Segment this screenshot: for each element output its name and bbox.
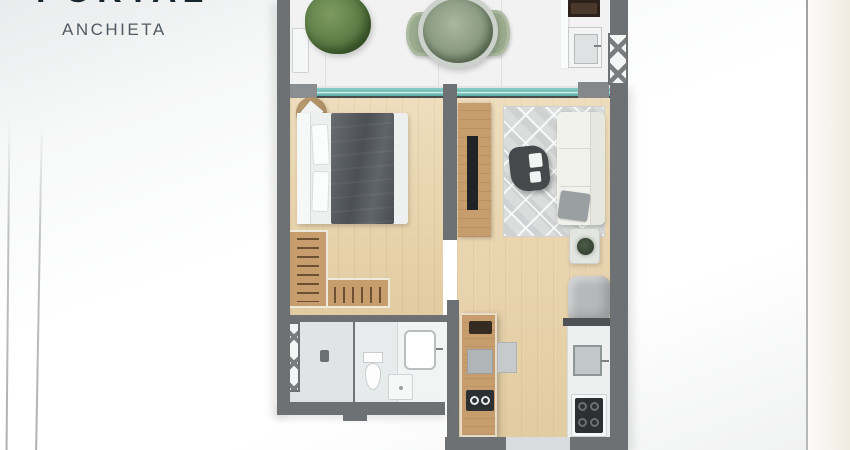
right-edge-line bbox=[806, 0, 808, 450]
wall-center-upper bbox=[443, 84, 457, 240]
stove-surround bbox=[571, 394, 607, 437]
column-hatch-bathroom bbox=[288, 322, 300, 392]
wardrobe-hangers bbox=[297, 238, 319, 302]
wall-bathroom-bottom bbox=[277, 402, 445, 415]
wall-right-top bbox=[610, 0, 628, 33]
bed-pillow bbox=[311, 124, 330, 166]
stove-burner bbox=[590, 402, 599, 411]
counter-dark-edge bbox=[563, 318, 610, 326]
gourmet-divider-wall bbox=[561, 0, 568, 68]
brand-subtitle: ANCHIETA bbox=[62, 21, 167, 38]
microwave bbox=[469, 321, 492, 334]
sofa-throw-blanket bbox=[557, 190, 591, 222]
tv-panel bbox=[458, 103, 491, 237]
stove-burner bbox=[578, 418, 587, 427]
side-table bbox=[569, 228, 600, 264]
vanity-basin bbox=[404, 330, 436, 370]
wall-right bbox=[610, 85, 628, 450]
kitchen-island bbox=[460, 313, 497, 437]
brand-title: PORTAL bbox=[36, 0, 209, 8]
cooktop-burner bbox=[481, 396, 490, 405]
bathroom-cabinet bbox=[388, 374, 413, 400]
side-table-plant bbox=[577, 238, 594, 255]
left-edge-line-2 bbox=[35, 122, 43, 450]
gourmet-sink-basin bbox=[574, 34, 598, 64]
wardrobe-hangers bbox=[334, 287, 386, 303]
sofa-cushion-seam bbox=[559, 148, 590, 149]
sofa-cushion-seam bbox=[559, 186, 590, 187]
sofa-backrest bbox=[590, 112, 605, 225]
floor-plan bbox=[277, 0, 628, 450]
glass-jamb-right bbox=[578, 82, 609, 98]
wall-bathroom-tab bbox=[343, 415, 367, 421]
grill bbox=[568, 0, 600, 17]
double-bed bbox=[297, 113, 408, 224]
gourmet-faucet bbox=[594, 45, 601, 47]
counter-sink bbox=[573, 345, 602, 376]
right-beige-strip bbox=[808, 0, 850, 450]
cooktop-burner bbox=[470, 396, 479, 405]
armchair bbox=[568, 276, 610, 322]
island-cabinet bbox=[467, 349, 493, 374]
wardrobe-vertical bbox=[288, 230, 328, 308]
stove-burner bbox=[578, 402, 587, 411]
bed-headboard bbox=[297, 113, 311, 224]
stove-burner bbox=[590, 418, 599, 427]
glass-jamb-left bbox=[290, 84, 317, 98]
toilet-tank bbox=[363, 352, 383, 363]
vanity-faucet bbox=[436, 348, 443, 350]
sink-faucet bbox=[601, 360, 609, 362]
wardrobe-horizontal bbox=[326, 278, 390, 308]
column-hatch-balcony bbox=[608, 33, 628, 85]
bed-blanket bbox=[331, 113, 394, 224]
wall-center-lower bbox=[447, 300, 459, 440]
wall-bathroom-top bbox=[288, 315, 448, 322]
page-background: PORTAL ANCHIETA bbox=[0, 0, 850, 450]
left-edge-line-1 bbox=[6, 118, 11, 450]
stove bbox=[575, 398, 603, 433]
gourmet-sink bbox=[568, 27, 602, 68]
cooktop bbox=[466, 390, 494, 411]
bed-pillow bbox=[311, 171, 329, 213]
shower-valve bbox=[320, 350, 329, 362]
sofa bbox=[557, 112, 604, 225]
tv bbox=[467, 136, 478, 210]
table-plant bbox=[423, 0, 493, 63]
cabinet-knob bbox=[399, 386, 403, 390]
brand-lockup: PORTAL ANCHIETA bbox=[0, 0, 260, 60]
coffee-table-tray bbox=[529, 171, 541, 183]
coffee-table-tray bbox=[528, 153, 542, 168]
entry-door bbox=[506, 437, 570, 450]
island-side-counter bbox=[497, 342, 517, 373]
